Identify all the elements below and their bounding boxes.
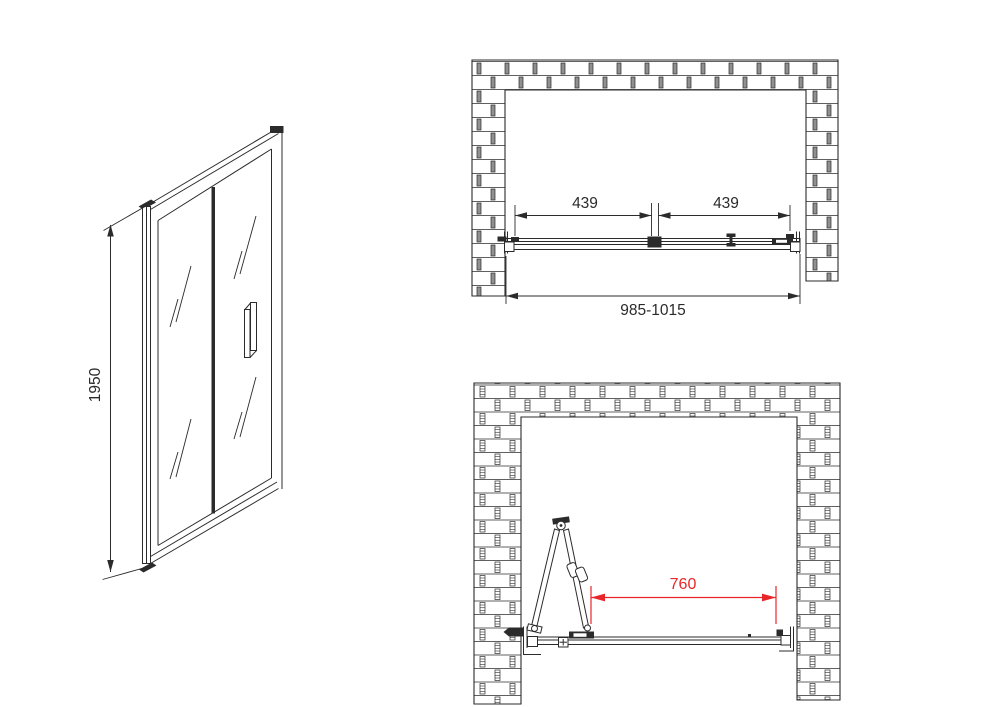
dimension-label-right-panel: 439	[713, 195, 739, 212]
dimension-label-height: 1950	[87, 367, 104, 402]
red-arrow-right	[762, 594, 776, 602]
open-door-track	[504, 627, 794, 655]
dimension-label-opening-width: 985-1015	[620, 302, 686, 319]
plan-view-closed: 439 439 985-1015	[472, 60, 838, 319]
technical-drawing-sheet: 1950	[0, 0, 1000, 707]
front-height-dimension: 1950	[87, 206, 149, 580]
pivot-arm-bracket	[569, 632, 594, 639]
front-door-handle	[245, 303, 257, 358]
center-fold-connector	[648, 237, 662, 248]
folded-door-panels	[527, 516, 591, 633]
front-door-frame	[139, 126, 284, 573]
panel-fold-hinge-divider	[212, 187, 216, 514]
brick-wall-closed-view	[472, 60, 838, 296]
frame-top-right-cap	[270, 126, 284, 133]
arrow-down	[107, 560, 114, 572]
right-wall-profile-flange-open	[781, 636, 791, 646]
brick-wall-open-view	[474, 383, 840, 704]
left-wall-bracket	[498, 237, 507, 242]
left-wall-profile-flange	[505, 242, 515, 252]
dimension-left-panel: 439	[515, 195, 652, 236]
dimension-right-panel: 439	[659, 195, 791, 236]
dimension-opening-width: 985-1015	[506, 254, 800, 319]
arrow-up	[107, 225, 114, 237]
right-wall-profile-flange	[791, 242, 801, 252]
track-roller-block	[559, 638, 569, 648]
track-screw-dot	[748, 634, 751, 637]
front-view: 1950	[87, 126, 284, 580]
closed-door-track	[498, 232, 801, 254]
dimension-clearance: 760	[591, 576, 776, 624]
left-wall-profile-flange-open	[528, 637, 538, 647]
drawing-canvas: 1950	[0, 0, 1000, 707]
folded-panel-left	[532, 529, 560, 628]
dimension-label-clearance: 760	[670, 576, 697, 593]
plan-view-open: 760	[474, 383, 840, 704]
red-arrow-left	[591, 594, 605, 602]
dimension-label-left-panel: 439	[572, 195, 598, 212]
bottom-right-hinge	[585, 625, 591, 631]
bottom-left-hinge	[532, 626, 538, 632]
